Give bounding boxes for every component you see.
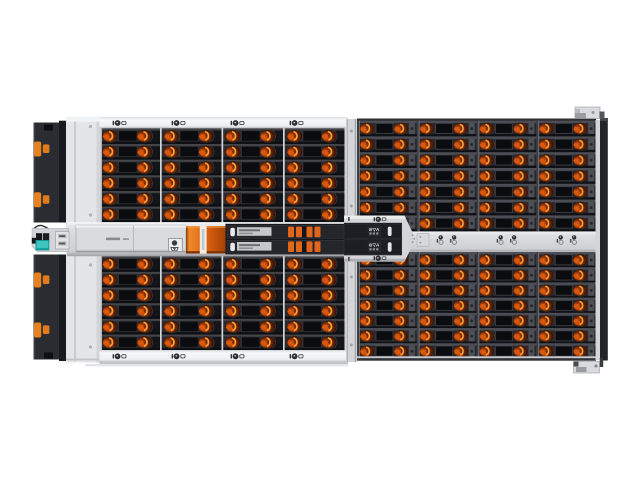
svg-text:⊘▽A: ⊘▽A [369,243,380,248]
svg-text:⊘▽A: ⊘▽A [369,227,380,232]
